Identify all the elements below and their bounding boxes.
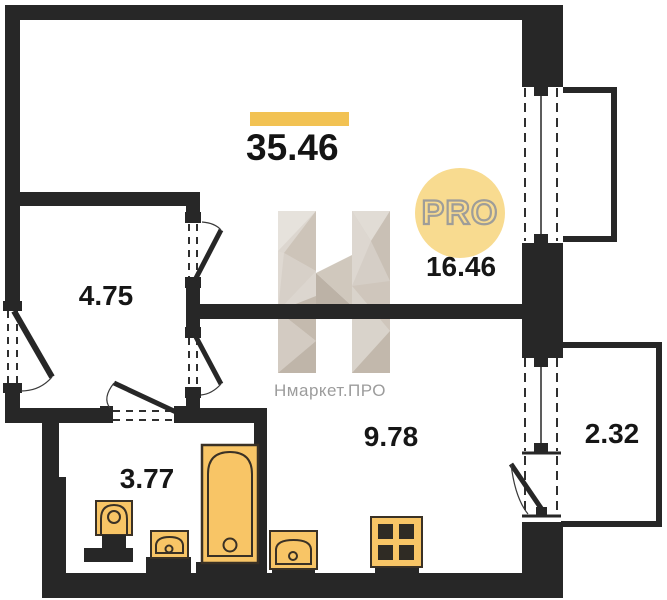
room-area-balcony: 2.32: [585, 420, 640, 448]
labels: 35.46 PRO 16.46 4.75 9.78 3.77 2.32: [0, 0, 667, 600]
room-area-hallway: 4.75: [79, 282, 134, 310]
floor-plan: Нмаркет.ПРО: [0, 0, 667, 600]
accent-bar: [250, 112, 349, 126]
total-area-label: 35.46: [246, 129, 339, 166]
room-area-bathroom: 3.77: [120, 465, 175, 493]
pro-badge: PRO: [415, 168, 505, 258]
room-area-living: 16.46: [426, 253, 496, 281]
room-area-kitchen: 9.78: [364, 423, 419, 451]
pro-badge-label: PRO: [422, 194, 499, 233]
